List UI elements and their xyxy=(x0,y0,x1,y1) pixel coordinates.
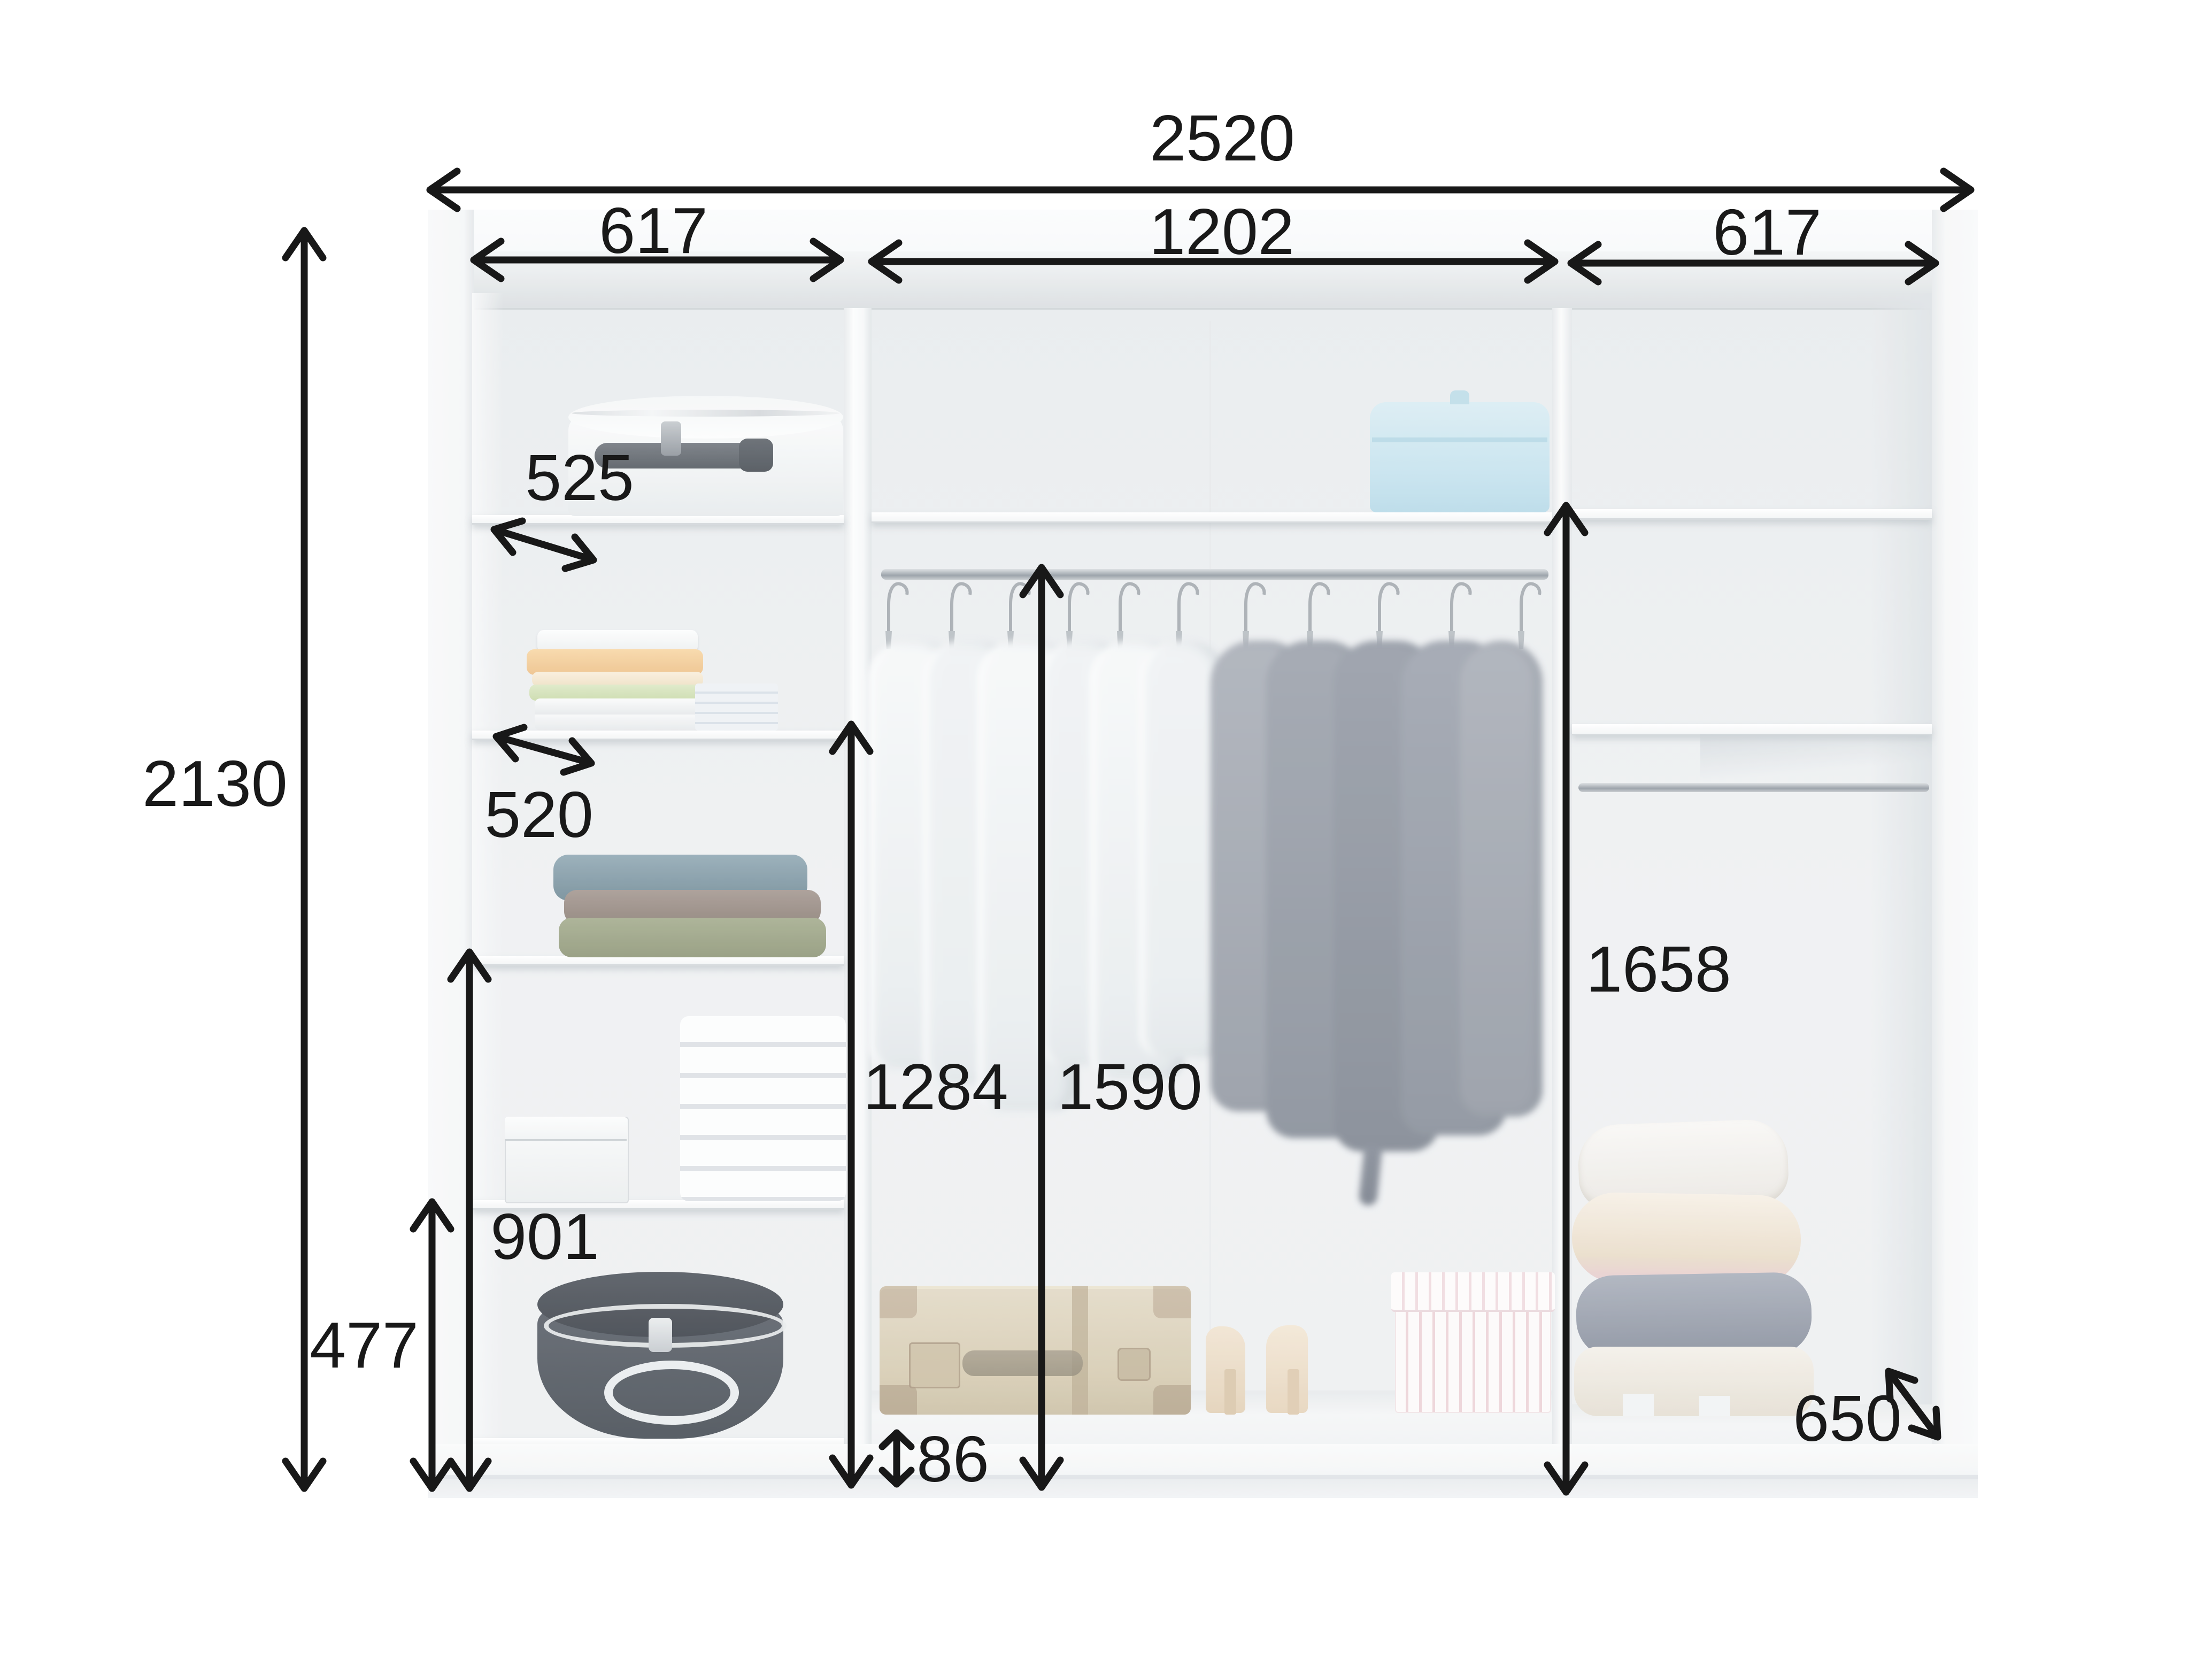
svg-text:2130: 2130 xyxy=(142,747,287,820)
svg-text:525: 525 xyxy=(525,441,634,514)
svg-text:1202: 1202 xyxy=(1149,195,1294,268)
svg-text:2520: 2520 xyxy=(1150,102,1294,174)
svg-text:86: 86 xyxy=(916,1423,989,1495)
svg-text:1284: 1284 xyxy=(863,1050,1008,1123)
svg-text:617: 617 xyxy=(1713,196,1822,268)
svg-text:650: 650 xyxy=(1793,1382,1902,1455)
svg-text:1658: 1658 xyxy=(1586,933,1731,1005)
svg-text:617: 617 xyxy=(599,194,708,267)
svg-text:520: 520 xyxy=(484,778,594,851)
svg-text:1590: 1590 xyxy=(1057,1050,1202,1123)
svg-text:477: 477 xyxy=(310,1309,419,1381)
svg-text:901: 901 xyxy=(490,1200,599,1273)
